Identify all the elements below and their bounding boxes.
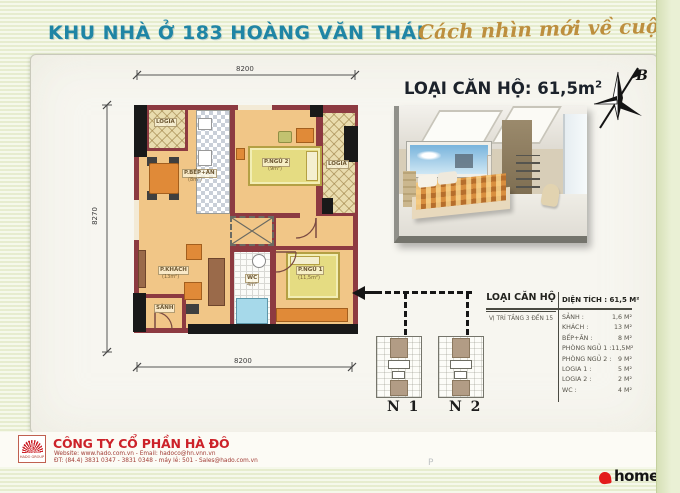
interior-wall bbox=[230, 105, 235, 217]
column bbox=[133, 293, 146, 332]
interior-render bbox=[394, 106, 587, 243]
stool bbox=[186, 304, 199, 314]
column bbox=[322, 198, 333, 214]
page-watermark: P bbox=[428, 458, 433, 468]
building-n2-label: N 2 bbox=[449, 399, 482, 415]
spec-label: WC : bbox=[562, 386, 577, 396]
n2-core-small bbox=[454, 371, 467, 379]
unit-type-text: LOẠI CĂN HỘ: 61,5m bbox=[404, 79, 595, 98]
company-name: CÔNG TY CỔ PHẦN HÀ ĐÔ bbox=[53, 436, 229, 451]
table-header-left: LOẠI CĂN HỘ bbox=[486, 292, 556, 303]
dimension-top: 8200 bbox=[236, 65, 254, 73]
tv-cabinet bbox=[138, 250, 146, 288]
hado-logo-caption: HADO GROUP bbox=[19, 455, 45, 459]
compass-label: B bbox=[635, 68, 648, 84]
render-pillow bbox=[438, 171, 457, 185]
spec-label: SẢNH : bbox=[562, 313, 584, 323]
spec-label: BẾP+ĂN : bbox=[562, 334, 593, 344]
spec-rows: SẢNH : 1,6 M² KHÁCH : 13 M² BẾP+ĂN : 8 M… bbox=[562, 313, 632, 396]
n1-unit-bottom bbox=[390, 380, 408, 396]
hado-fan-icon bbox=[22, 440, 43, 453]
spec-value: 1,6 M² bbox=[612, 313, 632, 323]
wc-bathtub bbox=[236, 298, 268, 324]
spec-label: LOGIA 1 : bbox=[562, 365, 591, 375]
spec-value: 4 M² bbox=[618, 386, 632, 396]
kitchen-stove bbox=[198, 150, 212, 166]
building-n1-label: N 1 bbox=[387, 399, 420, 415]
label-hall: SẢNH bbox=[154, 304, 175, 313]
unit-type-title: LOẠI CĂN HỘ: 61,5m2 bbox=[404, 79, 602, 98]
area-bedroom2: (9m²) bbox=[268, 167, 282, 173]
area-kitchen: (8m²) bbox=[188, 178, 202, 184]
slogan: Cách nhìn mới về cuộc sống! bbox=[418, 12, 680, 44]
kitchen-sink bbox=[198, 118, 212, 130]
label-bedroom1: P.NGỦ 1 bbox=[296, 266, 324, 275]
spec-label: PHÒNG NGỦ 1 : bbox=[562, 344, 611, 354]
area-bedroom1: (11,5m²) bbox=[298, 276, 320, 282]
wc-sink bbox=[252, 254, 266, 268]
column bbox=[310, 105, 323, 117]
spec-value: 9 M² bbox=[618, 355, 632, 365]
hado-logo: HADO GROUP bbox=[18, 435, 46, 463]
render-pillow bbox=[418, 174, 437, 188]
bedroom2-wardrobe bbox=[296, 128, 314, 143]
brochure-page: KHU NHÀ Ở 183 HOÀNG VĂN THÁI Cách nhìn m… bbox=[0, 0, 680, 493]
armchair bbox=[184, 282, 202, 300]
dimension-bottom: 8200 bbox=[234, 357, 252, 365]
spec-row: KHÁCH : 13 M² bbox=[562, 323, 632, 333]
connector-drop-n2 bbox=[466, 293, 469, 335]
bedroom1-cabinet bbox=[276, 308, 348, 322]
column bbox=[134, 105, 147, 157]
spec-row: LOGIA 1 : 5 M² bbox=[562, 365, 632, 375]
n1-unit-top bbox=[390, 338, 408, 358]
spec-value: 13 M² bbox=[614, 323, 632, 333]
bedroom2-nightstand bbox=[236, 148, 245, 160]
spec-row: SẢNH : 1,6 M² bbox=[562, 313, 632, 323]
page-title: KHU NHÀ Ở 183 HOÀNG VĂN THÁI bbox=[48, 22, 424, 44]
bedroom2-pillow bbox=[306, 151, 318, 181]
area-living: (13m²) bbox=[162, 275, 179, 281]
page-edge bbox=[656, 0, 680, 493]
n2-core bbox=[450, 360, 472, 369]
window-opening bbox=[238, 105, 272, 110]
n1-core bbox=[388, 360, 410, 369]
label-logia-right: LOGIA bbox=[326, 160, 349, 169]
interior-wall bbox=[272, 246, 358, 250]
render-cloud bbox=[417, 151, 441, 161]
label-logia-top: LOGIA bbox=[154, 118, 177, 127]
footer-contact-line1: Website: www.hado.com.vn - Email: hadoco… bbox=[54, 451, 216, 458]
n2-unit-bottom bbox=[452, 380, 470, 396]
table-sub-left: VỊ TRÍ TẦNG 3 ĐẾN 15 bbox=[486, 316, 556, 322]
spec-row: LOGIA 2 : 2 M² bbox=[562, 375, 632, 385]
spec-value: 8 M² bbox=[618, 334, 632, 344]
logia-top-area bbox=[146, 107, 188, 151]
column bbox=[344, 126, 358, 162]
dimension-left: 8270 bbox=[91, 207, 99, 225]
table-rule-2 bbox=[486, 311, 556, 312]
table-header-right: DIỆN TÍCH : 61,5 M² bbox=[562, 296, 639, 304]
n2-unit-top bbox=[452, 338, 470, 358]
spec-label: KHÁCH : bbox=[562, 323, 588, 333]
entrance-arrow-shaft bbox=[364, 291, 376, 294]
base-strip bbox=[188, 324, 358, 334]
interior-wall bbox=[146, 294, 186, 298]
homeup-icon bbox=[598, 471, 612, 485]
compass: B bbox=[592, 58, 652, 134]
spec-row: PHÒNG NGỦ 1 : 11,5M² bbox=[562, 344, 632, 354]
shaft-box bbox=[230, 216, 274, 246]
window-opening bbox=[134, 200, 139, 240]
table-rule bbox=[486, 308, 632, 310]
spec-label: PHÒNG NGỦ 2 : bbox=[562, 355, 611, 365]
spec-value: 11,5M² bbox=[611, 344, 633, 354]
spec-row: PHÒNG NGỦ 2 : 9 M² bbox=[562, 355, 632, 365]
render-shelf bbox=[516, 155, 540, 194]
spec-value: 2 M² bbox=[618, 375, 632, 385]
n1-core-small bbox=[392, 371, 405, 379]
connector-line bbox=[376, 291, 472, 294]
footer-contact-line2: ĐT: (84.4) 3831 0347 - 3831 0348 - máy l… bbox=[54, 458, 258, 465]
dining-table bbox=[149, 163, 179, 194]
render-silhouette bbox=[455, 154, 472, 168]
table-divider bbox=[558, 292, 559, 402]
connector-drop-n1 bbox=[404, 293, 407, 335]
spec-label: LOGIA 2 : bbox=[562, 375, 591, 385]
sofa bbox=[208, 258, 225, 306]
bedroom1-pillow bbox=[290, 256, 320, 265]
spec-row: BẾP+ĂN : 8 M² bbox=[562, 334, 632, 344]
armchair bbox=[186, 244, 202, 260]
bedroom2-table bbox=[278, 131, 292, 143]
spec-value: 5 M² bbox=[618, 365, 632, 375]
area-wc: 4m² bbox=[247, 283, 257, 289]
spec-row: WC : 4 M² bbox=[562, 386, 632, 396]
